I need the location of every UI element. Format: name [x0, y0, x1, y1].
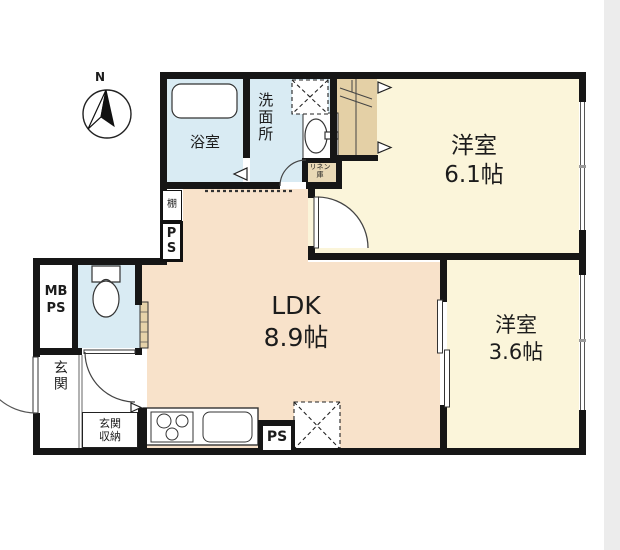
- ldk-floor: [183, 188, 308, 262]
- floor-plan-drawing: [0, 0, 620, 550]
- closet: [337, 79, 377, 155]
- ldk-label: LDK 8.9帖: [230, 290, 362, 354]
- pipe-space-upper: P S: [160, 221, 183, 262]
- stove-burner: [176, 415, 188, 427]
- refrigerator-space: [294, 402, 340, 449]
- floor-plan: N 洋室 6.1帖 洋室 3.6帖 LDK 8.9帖 浴室 洗面所 玄関 玄関 …: [0, 0, 620, 550]
- entrance-storage: 玄関 収納: [82, 412, 138, 448]
- washing-machine-space: [292, 80, 328, 114]
- kitchen-sink: [203, 412, 252, 442]
- toilet-bowl: [93, 281, 119, 317]
- bathroom-label: 浴室: [167, 133, 243, 152]
- meter-box-label: MB PS: [40, 284, 72, 317]
- bedroom1-label: 洋室 6.1帖: [408, 132, 540, 191]
- stove-burner: [166, 428, 178, 440]
- north-compass-icon: [83, 90, 131, 138]
- entrance-label: 玄関: [50, 360, 68, 392]
- window: [579, 102, 586, 230]
- wash-basin: [305, 119, 327, 153]
- entrance-door: [0, 357, 40, 413]
- stove-burner: [157, 414, 171, 428]
- linen-closet-label: リネン 庫: [303, 163, 337, 179]
- bedroom2-label: 洋室 3.6帖: [450, 312, 582, 366]
- pipe-space-lower: PS: [263, 429, 291, 447]
- compass-north-label: N: [95, 70, 105, 85]
- shelf-label: 棚: [162, 190, 182, 221]
- hatched-strip: [140, 302, 148, 348]
- bathtub: [172, 84, 237, 118]
- toilet-tank: [92, 266, 120, 282]
- toilet-door: [82, 348, 135, 402]
- washroom-label: 洗面所: [255, 92, 274, 143]
